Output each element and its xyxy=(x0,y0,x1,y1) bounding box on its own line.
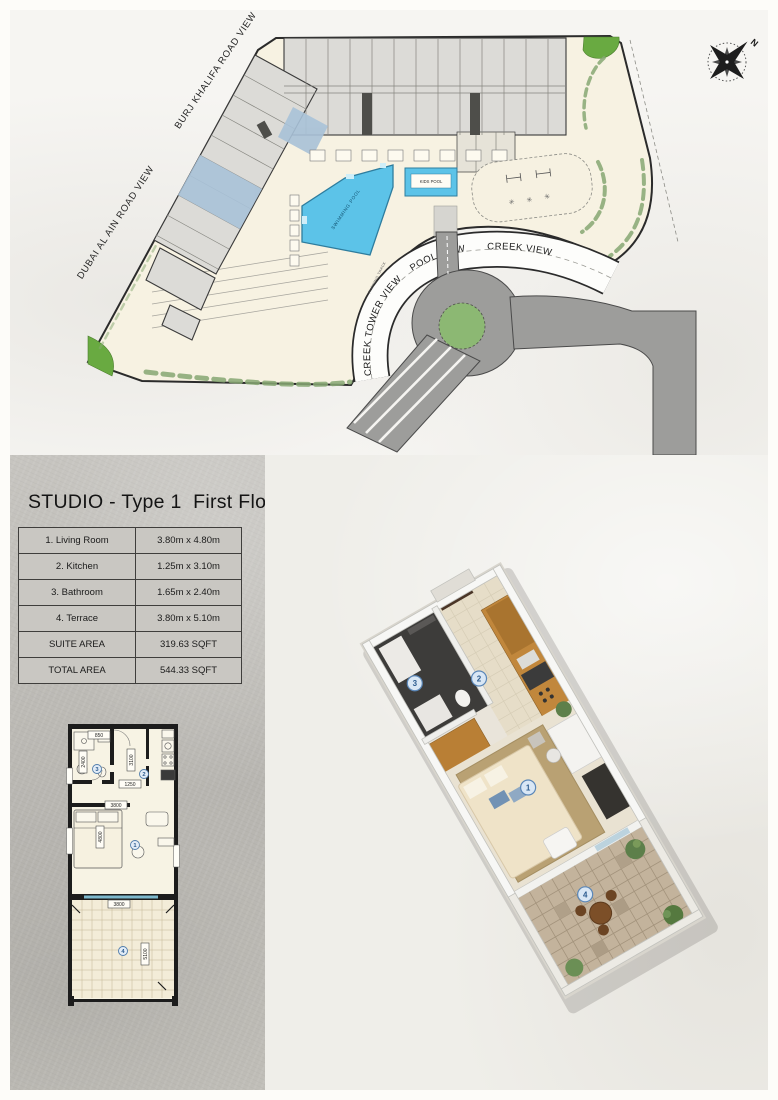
svg-text:3800: 3800 xyxy=(113,902,124,908)
brochure-page: SWIMMING POOL KIDS POOL ✳ ✳ ✳ xyxy=(10,10,768,1090)
kids-pool-label: KIDS POOL xyxy=(420,179,443,184)
unit-3d: 3 2 1 4 xyxy=(355,553,707,999)
svg-text:✳: ✳ xyxy=(508,198,515,207)
svg-text:2: 2 xyxy=(142,772,145,778)
area-label: TOTAL AREA xyxy=(19,658,136,684)
floor-plan-2d: 850 2400 3100 1250 3800 4800 3800 5100 3… xyxy=(58,710,193,1025)
site-plan-section: SWIMMING POOL KIDS POOL ✳ ✳ ✳ xyxy=(10,10,768,455)
room-label: 3. Bathroom xyxy=(19,580,136,606)
svg-text:2: 2 xyxy=(477,674,482,683)
table-row: 3. Bathroom1.65m x 2.40m xyxy=(19,580,242,606)
room-size: 3.80m x 4.80m xyxy=(136,528,242,554)
table-row: TOTAL AREA544.33 SQFT xyxy=(19,658,242,684)
svg-text:3: 3 xyxy=(413,679,418,688)
studio-3d-panel: 3 2 1 4 xyxy=(265,455,768,1090)
room-size: 1.25m x 3.10m xyxy=(136,554,242,580)
svg-text:✳: ✳ xyxy=(526,196,533,205)
room-label: 4. Terrace xyxy=(19,606,136,632)
table-row: 4. Terrace3.80m x 5.10m xyxy=(19,606,242,632)
dimensions-table: 1. Living Room3.80m x 4.80m 2. Kitchen1.… xyxy=(18,527,242,684)
svg-text:2400: 2400 xyxy=(81,756,87,767)
svg-text:5100: 5100 xyxy=(143,948,149,959)
site-plan-drawing: SWIMMING POOL KIDS POOL ✳ ✳ ✳ xyxy=(10,10,768,455)
page-title: STUDIO - Type 1 First Floor xyxy=(28,491,284,514)
studio-info-panel: STUDIO - Type 1 First Floor 1. Living Ro… xyxy=(10,455,265,1090)
area-label: SUITE AREA xyxy=(19,632,136,658)
kids-pool: KIDS POOL xyxy=(405,168,457,196)
terrace-glass-door xyxy=(84,896,158,899)
compass-north-label: N xyxy=(749,37,760,49)
floor-plan-3d: 3 2 1 4 xyxy=(265,455,768,1090)
svg-text:1250: 1250 xyxy=(124,782,135,788)
roundabout-island xyxy=(439,303,485,349)
table-row: 2. Kitchen1.25m x 3.10m xyxy=(19,554,242,580)
svg-text:3100: 3100 xyxy=(129,754,135,765)
svg-text:850: 850 xyxy=(95,733,104,739)
area-value: 544.33 SQFT xyxy=(136,658,242,684)
room-size: 1.65m x 2.40m xyxy=(136,580,242,606)
svg-text:4: 4 xyxy=(583,890,588,899)
room-label: 2. Kitchen xyxy=(19,554,136,580)
svg-text:1: 1 xyxy=(526,784,531,793)
table-row: 1. Living Room3.80m x 4.80m xyxy=(19,528,242,554)
compass-rose: N xyxy=(693,25,764,96)
svg-text:4800: 4800 xyxy=(98,831,104,842)
svg-text:3800: 3800 xyxy=(110,803,121,809)
area-value: 319.63 SQFT xyxy=(136,632,242,658)
svg-text:✳: ✳ xyxy=(544,193,551,202)
room-label: 1. Living Room xyxy=(19,528,136,554)
table-row: SUITE AREA319.63 SQFT xyxy=(19,632,242,658)
room-size: 3.80m x 5.10m xyxy=(136,606,242,632)
